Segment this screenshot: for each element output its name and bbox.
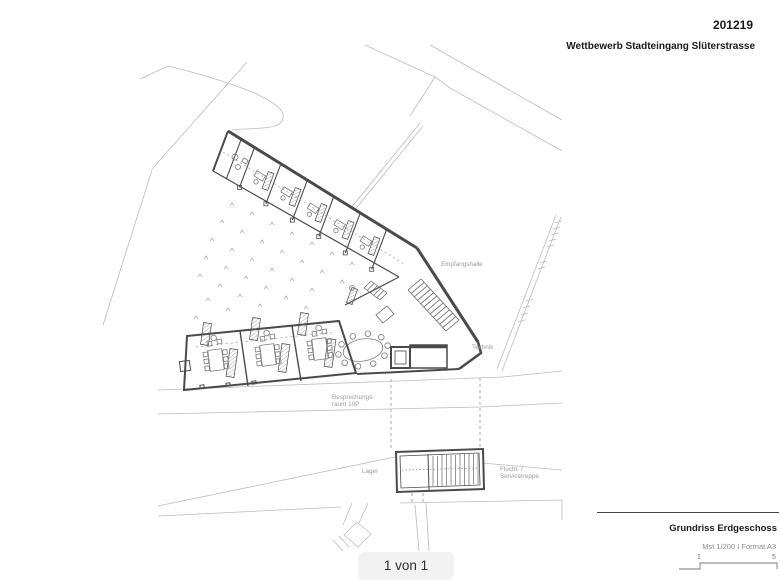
boundary-wall-ticks [497, 215, 562, 371]
label-lager: Lager [362, 468, 378, 475]
hall-hatch-pier [346, 287, 357, 304]
elevator-shaft [391, 347, 410, 368]
hall-main-stair [408, 279, 459, 331]
band-tables [203, 337, 333, 372]
courtyard-planting [194, 203, 354, 319]
label-empfangshalle: Empfangshalle [441, 261, 483, 268]
office-wing [213, 131, 417, 277]
site-context-lines [103, 45, 562, 551]
title-block-divider [597, 512, 779, 513]
label-besprechung-2: raum 10P [332, 401, 359, 408]
hall-small-stair [364, 281, 387, 300]
band-stair-hatch [201, 313, 336, 378]
label-besprechung-1: Besprechungs- [332, 394, 374, 401]
scale-bar-line [679, 563, 777, 569]
scale-bar: 1 5 [672, 550, 780, 572]
label-flucht-1: Flucht- / [500, 466, 523, 473]
technik-room [410, 345, 447, 368]
label-flucht-2: Servicetreppe [500, 473, 539, 480]
page-indicator: 1 von 1 [358, 552, 454, 580]
label-technik: Technik [472, 344, 494, 351]
meeting-room-band [179, 313, 356, 390]
service-stair-box [396, 449, 484, 492]
drawing-title: Grundriss Erdgeschoss [669, 523, 777, 534]
floor-plan-drawing: Empfangshalle Technik Besprechungs- raum… [0, 0, 780, 585]
projection-dashed-lines [391, 378, 480, 505]
sheet: 201219 Wettbewerb Stadteingang Slüterstr… [0, 0, 780, 585]
scale-end-label: 5 [772, 554, 776, 561]
scale-start-label: 1 [697, 554, 701, 561]
stair-treads [433, 454, 478, 486]
